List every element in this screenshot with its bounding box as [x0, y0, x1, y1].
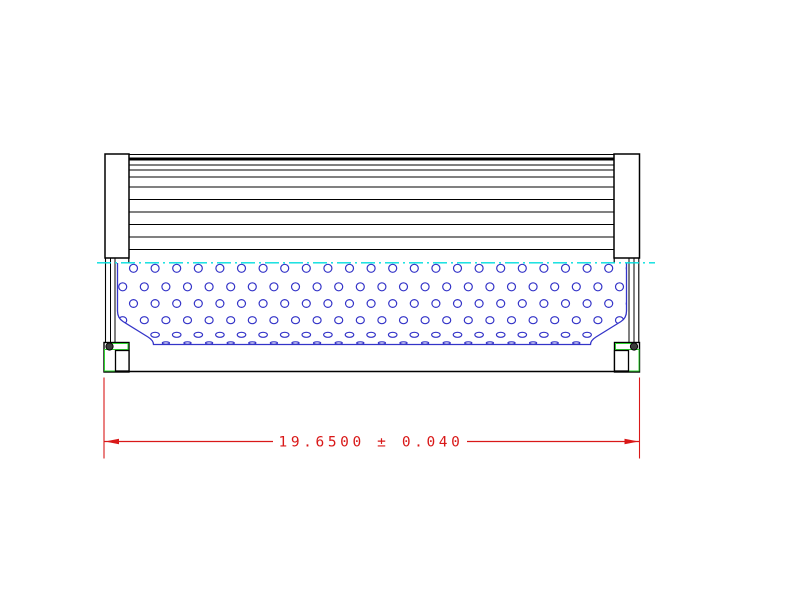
core-hole: [259, 300, 267, 308]
core-hole: [453, 332, 462, 337]
core-hole: [626, 264, 634, 272]
dimension-annotation: 19.6500 ± 0.040: [104, 378, 640, 459]
core-hole: [184, 283, 192, 291]
core-hole: [313, 317, 321, 324]
core-hole: [475, 264, 483, 272]
core-hole: [206, 342, 213, 344]
core-hole: [388, 332, 397, 337]
core-hole: [184, 342, 191, 344]
core-hole: [540, 332, 549, 337]
core-hole: [400, 317, 408, 324]
core-hole: [324, 264, 332, 272]
core-hole: [410, 264, 418, 272]
core-hole: [594, 342, 601, 344]
core-hole: [172, 332, 181, 337]
core-hole: [389, 300, 397, 308]
left-cap-pocket: [116, 351, 130, 372]
core-hole: [140, 317, 148, 324]
core-hole: [508, 317, 516, 324]
core-hole: [626, 332, 635, 337]
right-oring: [630, 343, 637, 350]
core-hole: [378, 283, 386, 291]
core-hole: [551, 283, 559, 291]
core-hole: [292, 283, 300, 291]
core-hole: [151, 300, 159, 308]
core-hole: [335, 342, 342, 344]
core-hole: [281, 300, 289, 308]
core-hole: [410, 332, 419, 337]
core-hole: [205, 317, 213, 324]
core-hole: [357, 342, 364, 344]
core-hole: [573, 342, 580, 344]
perforated-core: [118, 263, 635, 345]
core-hole: [173, 300, 181, 308]
core-hole: [443, 317, 451, 324]
core-hole: [129, 332, 138, 337]
core-hole: [313, 283, 321, 291]
core-hole: [346, 300, 354, 308]
core-hole: [400, 283, 408, 291]
core-hole: [270, 342, 277, 344]
core-hole: [551, 342, 558, 344]
core-hole: [162, 317, 170, 324]
core-hole: [356, 283, 364, 291]
core-hole: [464, 317, 472, 324]
core-hole: [443, 342, 450, 344]
core-hole: [454, 264, 462, 272]
core-hole: [605, 300, 613, 308]
core-hole: [465, 342, 472, 344]
core-hole: [259, 332, 268, 337]
core-hole: [248, 283, 256, 291]
core-hole: [422, 342, 429, 344]
core-hole: [616, 283, 624, 291]
core-hole: [572, 283, 580, 291]
core-hole: [205, 283, 213, 291]
core-hole: [421, 317, 429, 324]
core-hole: [238, 300, 246, 308]
core-hole: [345, 332, 354, 337]
core-hole: [367, 300, 375, 308]
core-hole-pattern: [119, 264, 635, 344]
core-hole: [475, 332, 484, 337]
core-hole: [518, 332, 527, 337]
right-cap-pocket: [615, 351, 629, 372]
core-hole: [270, 317, 278, 324]
core-hole: [530, 342, 537, 344]
core-hole: [496, 332, 505, 337]
core-hole: [497, 264, 505, 272]
core-hole: [356, 317, 364, 324]
core-hole: [389, 264, 397, 272]
right-arrowhead-icon: [625, 439, 639, 445]
core-hole: [486, 342, 493, 344]
core-hole: [378, 342, 385, 344]
core-hole: [475, 300, 483, 308]
core-hole: [119, 317, 127, 324]
right-seal-assembly: [615, 343, 640, 373]
core-hole: [237, 332, 246, 337]
core-hole: [216, 264, 224, 272]
core-hole: [140, 283, 148, 291]
core-hole: [540, 300, 548, 308]
core-hole: [572, 317, 580, 324]
core-hole: [454, 300, 462, 308]
right-end-cap-skirt: [629, 258, 639, 344]
core-hole: [227, 342, 234, 344]
left-end-cap: [105, 154, 129, 258]
core-hole: [335, 317, 343, 324]
core-hole: [302, 264, 310, 272]
core-hole: [518, 300, 526, 308]
core-hole: [324, 300, 332, 308]
core-hole: [583, 300, 591, 308]
left-end-cap-skirt: [106, 258, 116, 344]
core-hole: [324, 332, 333, 337]
core-hole: [486, 317, 494, 324]
core-hole: [346, 264, 354, 272]
core-hole: [259, 264, 267, 272]
core-hole: [562, 264, 570, 272]
core-hole: [561, 332, 570, 337]
core-hole: [119, 283, 127, 291]
pleated-media: [129, 155, 614, 250]
core-hole: [314, 342, 321, 344]
core-hole: [280, 332, 289, 337]
core-hole: [194, 264, 202, 272]
core-hole: [184, 317, 192, 324]
core-hole: [249, 342, 256, 344]
core-hole: [270, 283, 278, 291]
core-hole: [302, 332, 311, 337]
core-hole: [583, 264, 591, 272]
core-hole: [432, 300, 440, 308]
core-hole: [292, 317, 300, 324]
core-hole: [508, 342, 515, 344]
core-hole: [130, 264, 138, 272]
core-hole: [410, 300, 418, 308]
core-hole: [562, 300, 570, 308]
technical-drawing-page: 19.6500 ± 0.040: [0, 0, 810, 600]
core-hole: [486, 283, 494, 291]
core-hole: [594, 283, 602, 291]
core-hole: [540, 264, 548, 272]
core-hole: [551, 317, 559, 324]
core-hole: [443, 283, 451, 291]
core-hole: [227, 317, 235, 324]
core-hole: [367, 264, 375, 272]
core-hole: [216, 300, 224, 308]
core-hole: [194, 332, 203, 337]
core-hole: [400, 342, 407, 344]
core-hole: [162, 342, 169, 344]
right-end-cap: [614, 154, 640, 258]
left-arrowhead-icon: [105, 439, 119, 445]
core-hole: [162, 283, 170, 291]
left-oring: [106, 343, 113, 350]
core-hole: [518, 264, 526, 272]
core-hole: [173, 264, 181, 272]
core-hole: [529, 317, 537, 324]
core-hole: [194, 300, 202, 308]
core-hole: [529, 283, 537, 291]
core-hole: [497, 300, 505, 308]
filter-element-drawing: 19.6500 ± 0.040: [0, 0, 810, 600]
core-hole: [583, 332, 592, 337]
core-hole: [141, 342, 148, 344]
core-hole: [367, 332, 376, 337]
core-hole: [151, 332, 160, 337]
core-hole: [605, 264, 613, 272]
core-hole: [292, 342, 299, 344]
core-hole: [227, 283, 235, 291]
core-hole: [216, 332, 225, 337]
core-hole: [604, 332, 613, 337]
core-hole: [432, 332, 441, 337]
core-hole: [151, 264, 159, 272]
core-hole: [248, 317, 256, 324]
dimension-text: 19.6500 ± 0.040: [279, 435, 464, 451]
core-hole: [626, 300, 634, 308]
core-hole: [464, 283, 472, 291]
core-hole: [238, 264, 246, 272]
core-hole: [432, 264, 440, 272]
core-hole: [508, 283, 516, 291]
left-seal-assembly: [104, 343, 129, 373]
core-hole: [130, 300, 138, 308]
core-hole: [421, 283, 429, 291]
core-hole: [378, 317, 386, 324]
core-hole: [335, 283, 343, 291]
core-hole: [302, 300, 310, 308]
core-hole: [594, 317, 602, 324]
core-hole: [281, 264, 289, 272]
